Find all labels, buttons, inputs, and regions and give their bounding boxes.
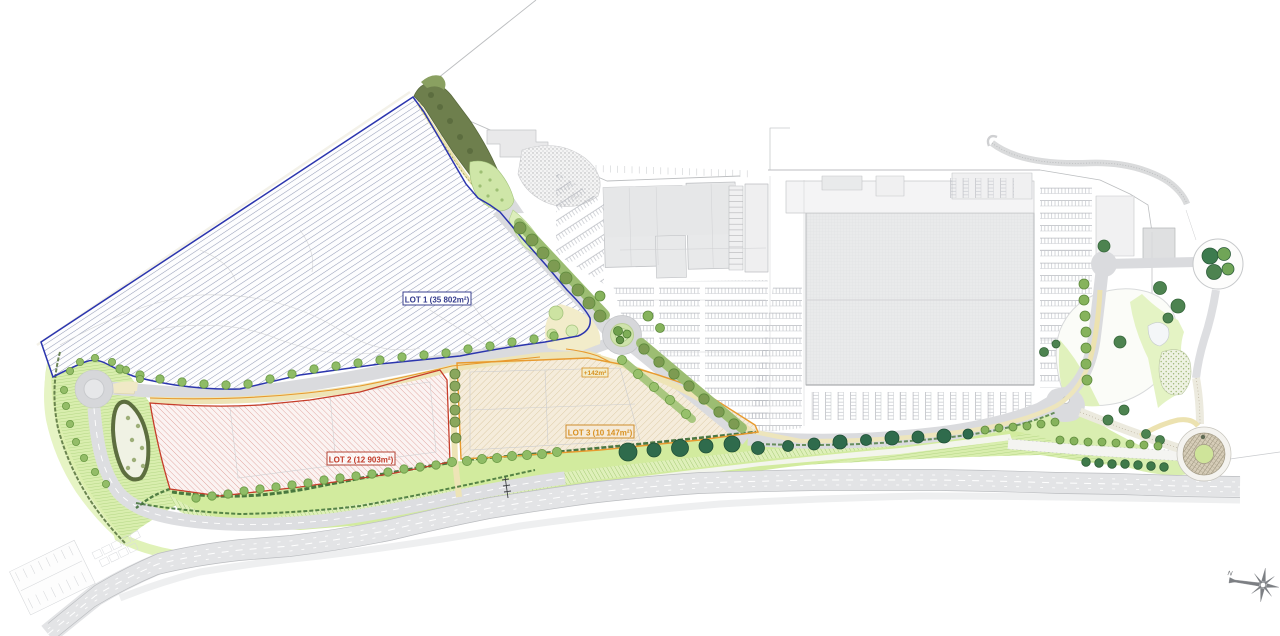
- svg-text:LOT 2 (12 903m²): LOT 2 (12 903m²): [329, 456, 394, 465]
- svg-text:+142m²: +142m²: [584, 370, 607, 377]
- svg-text:LOT 3 (10 147m²): LOT 3 (10 147m²): [568, 429, 633, 438]
- svg-text:LOT 1 (35 802m²): LOT 1 (35 802m²): [405, 296, 470, 305]
